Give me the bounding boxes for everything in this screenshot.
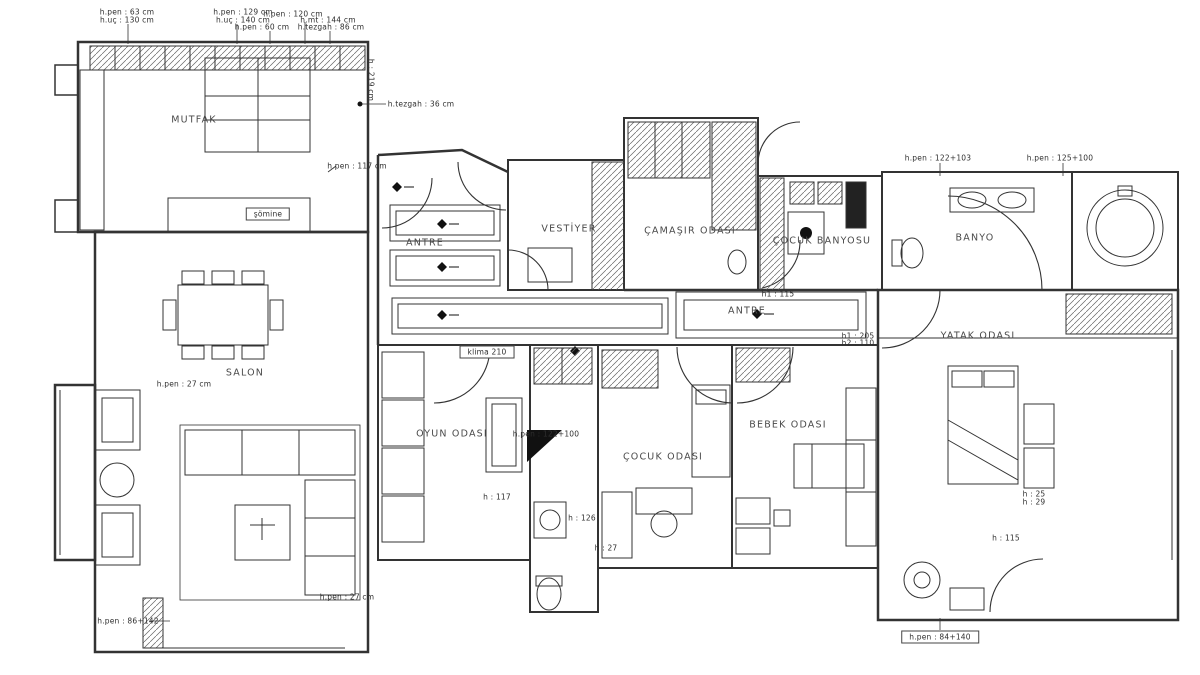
- vestiyer-furniture: [528, 162, 624, 290]
- oyun-furniture: [382, 352, 522, 542]
- salon-furniture: [95, 271, 360, 648]
- banyo-fixtures: [892, 186, 1163, 268]
- camasir-furniture: [628, 122, 756, 274]
- kitchen-furniture: [80, 46, 365, 232]
- corridor-rugs: [390, 205, 866, 338]
- floor-plan-canvas: [0, 0, 1200, 675]
- walls: [55, 42, 1178, 652]
- cocuk-banyosu-fixtures: [760, 178, 866, 290]
- cocuk-odasi-furniture: [602, 350, 730, 558]
- floor-plan-page: MUTFAKSALONANTREVESTİYERÇAMAŞIR ODASIÇOC…: [0, 0, 1200, 675]
- bedroom-furniture: [904, 294, 1172, 610]
- bebek-odasi-furniture: [736, 348, 876, 554]
- small-bath-fixtures: [534, 348, 592, 610]
- pivot-door-icon: [527, 430, 562, 462]
